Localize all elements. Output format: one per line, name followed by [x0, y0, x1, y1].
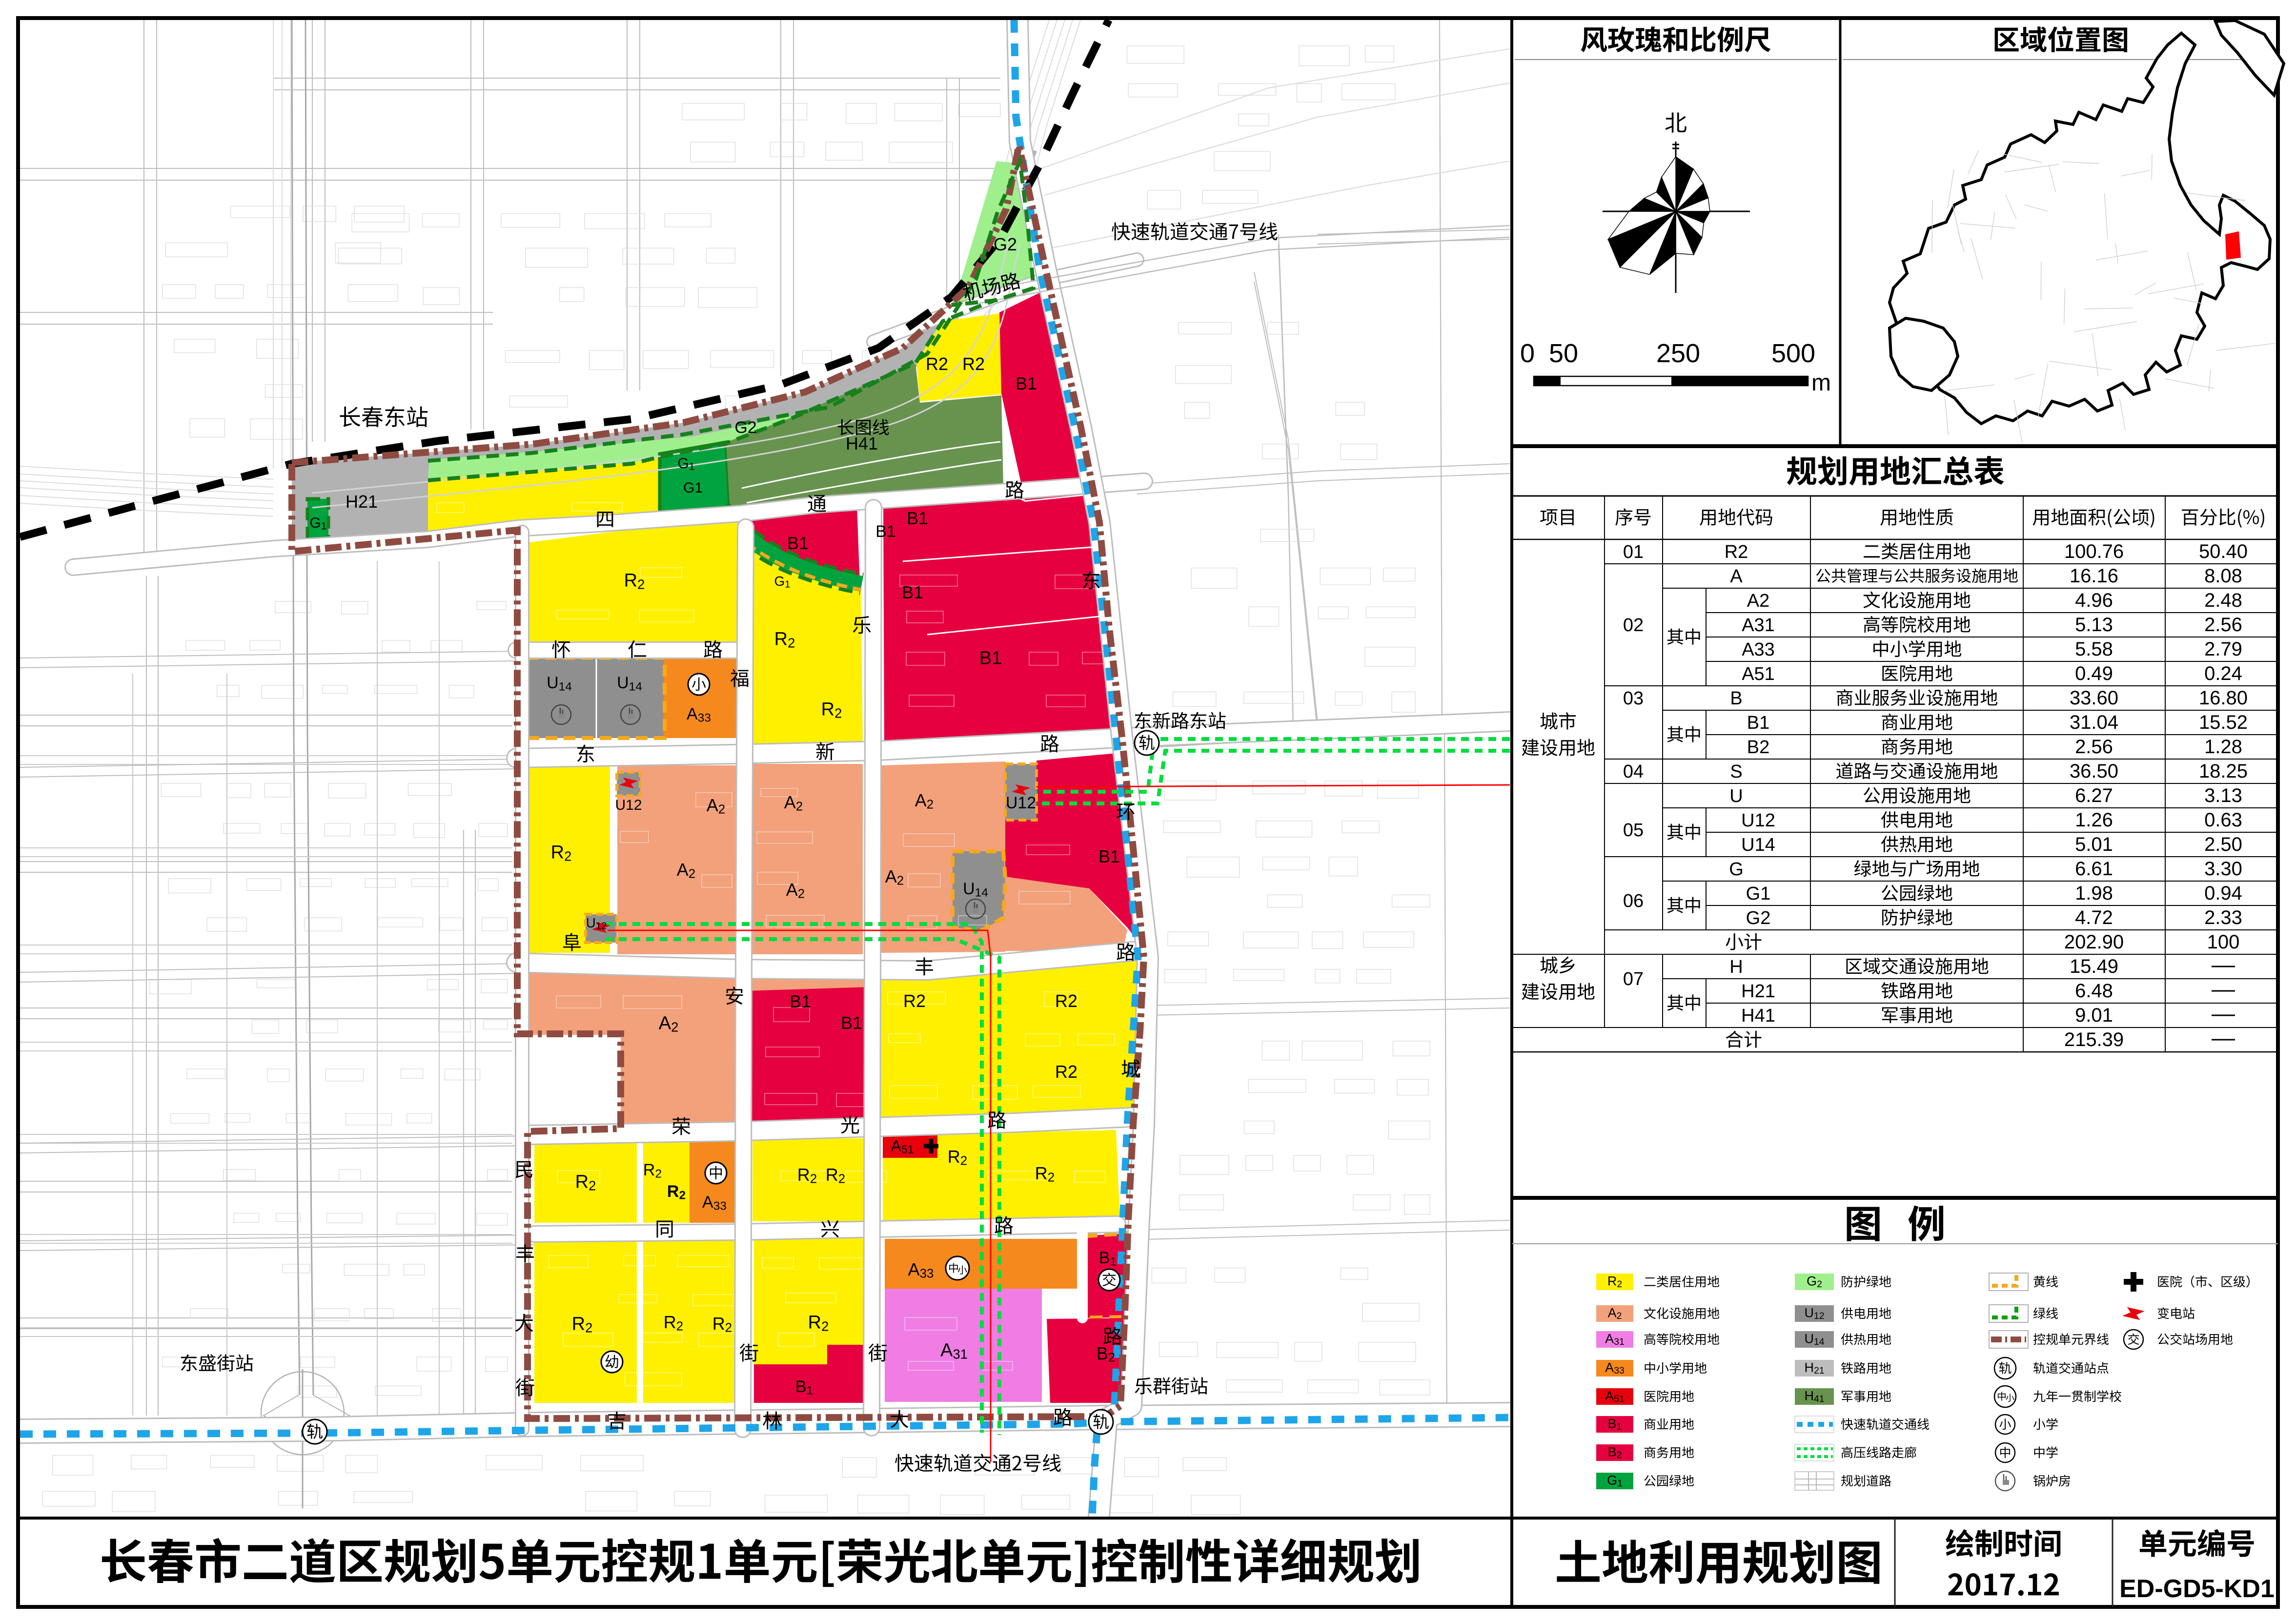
svg-text:G2: G2	[734, 418, 756, 437]
svg-text:m: m	[1811, 370, 1831, 396]
svg-text:ED-GD5-KD1: ED-GD5-KD1	[2119, 1575, 2275, 1603]
svg-text:B1: B1	[841, 1013, 862, 1033]
svg-text:202.90: 202.90	[2064, 931, 2124, 953]
svg-text:A: A	[1730, 566, 1743, 587]
svg-text:R2: R2	[1725, 542, 1748, 562]
svg-text:R2: R2	[926, 354, 948, 374]
svg-text:15.52: 15.52	[2199, 712, 2248, 733]
svg-text:B1: B1	[907, 508, 928, 528]
svg-text:2.56: 2.56	[2075, 736, 2113, 758]
svg-text:16.16: 16.16	[2070, 565, 2118, 587]
svg-text:500: 500	[1771, 339, 1815, 368]
svg-text:B1: B1	[787, 533, 809, 553]
svg-text:G2: G2	[994, 234, 1017, 254]
svg-text:B1: B1	[1098, 846, 1120, 866]
svg-text:B2: B2	[1747, 737, 1769, 758]
svg-text:B1: B1	[875, 522, 896, 541]
svg-text:100.76: 100.76	[2064, 541, 2124, 562]
svg-text:G2: G2	[1746, 908, 1771, 928]
svg-text:B1: B1	[1747, 713, 1769, 733]
svg-text:0.94: 0.94	[2204, 883, 2242, 904]
svg-text:8.08: 8.08	[2204, 565, 2242, 587]
svg-text:3.30: 3.30	[2204, 858, 2242, 880]
svg-text:4.96: 4.96	[2075, 590, 2113, 611]
svg-text:1.26: 1.26	[2075, 809, 2113, 831]
svg-text:36.50: 36.50	[2070, 761, 2118, 782]
svg-text:U12: U12	[615, 797, 642, 813]
svg-text:A51: A51	[1742, 664, 1775, 684]
svg-text:2.50: 2.50	[2204, 834, 2242, 855]
svg-text:215.39: 215.39	[2064, 1029, 2124, 1050]
svg-text:0.49: 0.49	[2075, 663, 2113, 684]
svg-text:A31: A31	[1742, 615, 1775, 636]
svg-text:3.13: 3.13	[2204, 785, 2242, 806]
svg-text:G: G	[1729, 859, 1744, 880]
svg-text:U14: U14	[1741, 835, 1775, 855]
svg-text:H: H	[1729, 957, 1743, 977]
svg-text:5.58: 5.58	[2075, 638, 2113, 660]
svg-text:01: 01	[1623, 542, 1644, 562]
svg-text:0.24: 0.24	[2204, 663, 2242, 684]
svg-text:18.25: 18.25	[2199, 761, 2248, 782]
svg-text:2.79: 2.79	[2204, 638, 2242, 660]
svg-text:1.28: 1.28	[2204, 736, 2242, 758]
svg-text:S: S	[1730, 761, 1742, 782]
svg-text:H41: H41	[1741, 1006, 1775, 1026]
svg-text:B1: B1	[902, 582, 923, 602]
svg-text:2.48: 2.48	[2204, 590, 2242, 611]
svg-text:H21: H21	[1741, 981, 1775, 1002]
svg-text:4.72: 4.72	[2075, 907, 2113, 928]
svg-text:U12: U12	[1741, 810, 1775, 831]
svg-text:B1: B1	[979, 648, 1002, 669]
svg-text:31.04: 31.04	[2070, 712, 2118, 733]
svg-text:2.56: 2.56	[2204, 614, 2242, 636]
svg-text:6.27: 6.27	[2075, 785, 2113, 806]
svg-text:B1: B1	[1016, 373, 1037, 393]
svg-text:G1: G1	[683, 480, 703, 496]
svg-text:1.98: 1.98	[2075, 883, 2113, 904]
svg-text:03: 03	[1623, 688, 1644, 709]
svg-text:5.01: 5.01	[2075, 834, 2113, 855]
svg-text:9.01: 9.01	[2075, 1005, 2113, 1026]
svg-text:6.48: 6.48	[2075, 980, 2113, 1002]
svg-text:5.13: 5.13	[2075, 614, 2113, 636]
svg-text:50.40: 50.40	[2199, 541, 2248, 562]
svg-text:R2: R2	[1055, 991, 1077, 1011]
svg-text:B1: B1	[790, 991, 811, 1011]
svg-text:04: 04	[1623, 761, 1644, 782]
svg-text:05: 05	[1623, 820, 1644, 841]
svg-text:100: 100	[2207, 931, 2240, 953]
svg-text:U: U	[1729, 786, 1743, 806]
svg-text:U12: U12	[1006, 794, 1036, 812]
svg-text:250: 250	[1656, 339, 1700, 368]
svg-text:33.60: 33.60	[2070, 687, 2118, 709]
svg-text:16.80: 16.80	[2199, 687, 2248, 709]
svg-text:06: 06	[1623, 891, 1644, 911]
svg-text:6.61: 6.61	[2075, 858, 2113, 880]
svg-text:02: 02	[1623, 615, 1644, 636]
svg-text:2.33: 2.33	[2204, 907, 2242, 928]
svg-text:R2: R2	[962, 354, 985, 374]
svg-text:R2: R2	[903, 991, 926, 1011]
svg-text:0: 0	[1520, 339, 1535, 368]
svg-text:G1: G1	[1746, 884, 1771, 904]
svg-text:A2: A2	[1747, 591, 1769, 611]
svg-text:B: B	[1730, 688, 1742, 709]
svg-text:H21: H21	[345, 492, 378, 512]
svg-text:R2: R2	[1055, 1062, 1077, 1082]
svg-text:H41: H41	[846, 433, 878, 453]
svg-text:07: 07	[1623, 969, 1644, 989]
svg-text:50: 50	[1549, 339, 1578, 368]
svg-text:0.63: 0.63	[2204, 809, 2242, 831]
svg-text:A33: A33	[1742, 639, 1775, 660]
svg-text:15.49: 15.49	[2070, 956, 2118, 977]
